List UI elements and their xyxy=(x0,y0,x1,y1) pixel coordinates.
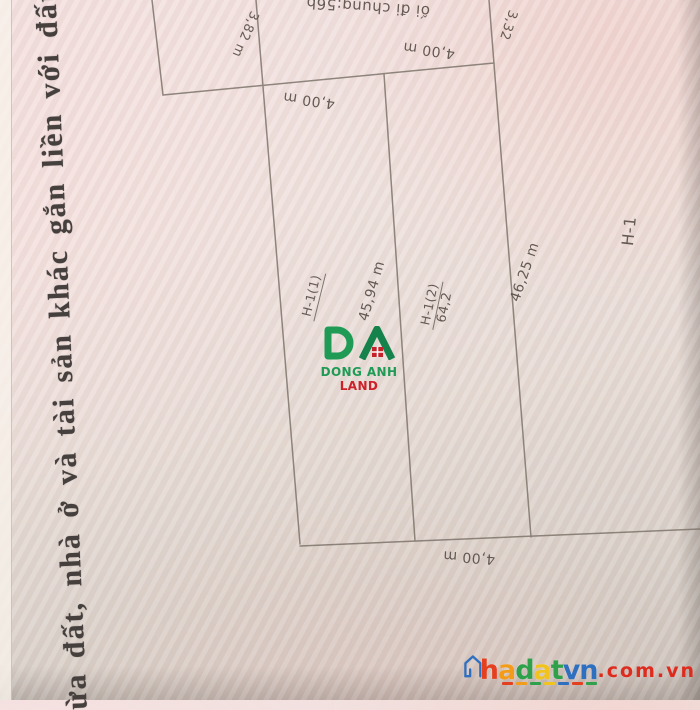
plot-boundary-left xyxy=(256,0,300,544)
plot-edge-top-left-vertical xyxy=(152,0,163,95)
logo-wordmark: DONG ANH LAND xyxy=(300,365,418,393)
block-label-h1: H-1 xyxy=(618,215,640,246)
logo-name-dong-anh: DONG ANH xyxy=(321,365,398,379)
watermark-brand-text: hadatvn xyxy=(480,657,598,684)
plot-edge-top-horizontal xyxy=(163,63,494,95)
parcel-h1-1-area xyxy=(321,298,330,300)
hadatvn-watermark: hadatvn .com.vn xyxy=(462,648,696,698)
watermark-tagline xyxy=(502,682,597,685)
photographed-land-certificate: { "document": { "left_margin_text": "ừa … xyxy=(0,0,700,700)
logo-name-land: LAND xyxy=(340,379,379,393)
dong-anh-land-logo: DONG ANH LAND xyxy=(300,326,418,393)
brand-letter: h xyxy=(480,655,498,686)
watermark-domain-suffix: .com.vn xyxy=(598,660,696,684)
da-monogram-icon xyxy=(322,326,396,360)
plot-edge-bottom xyxy=(300,529,700,546)
plot-boundary-middle xyxy=(384,74,415,541)
